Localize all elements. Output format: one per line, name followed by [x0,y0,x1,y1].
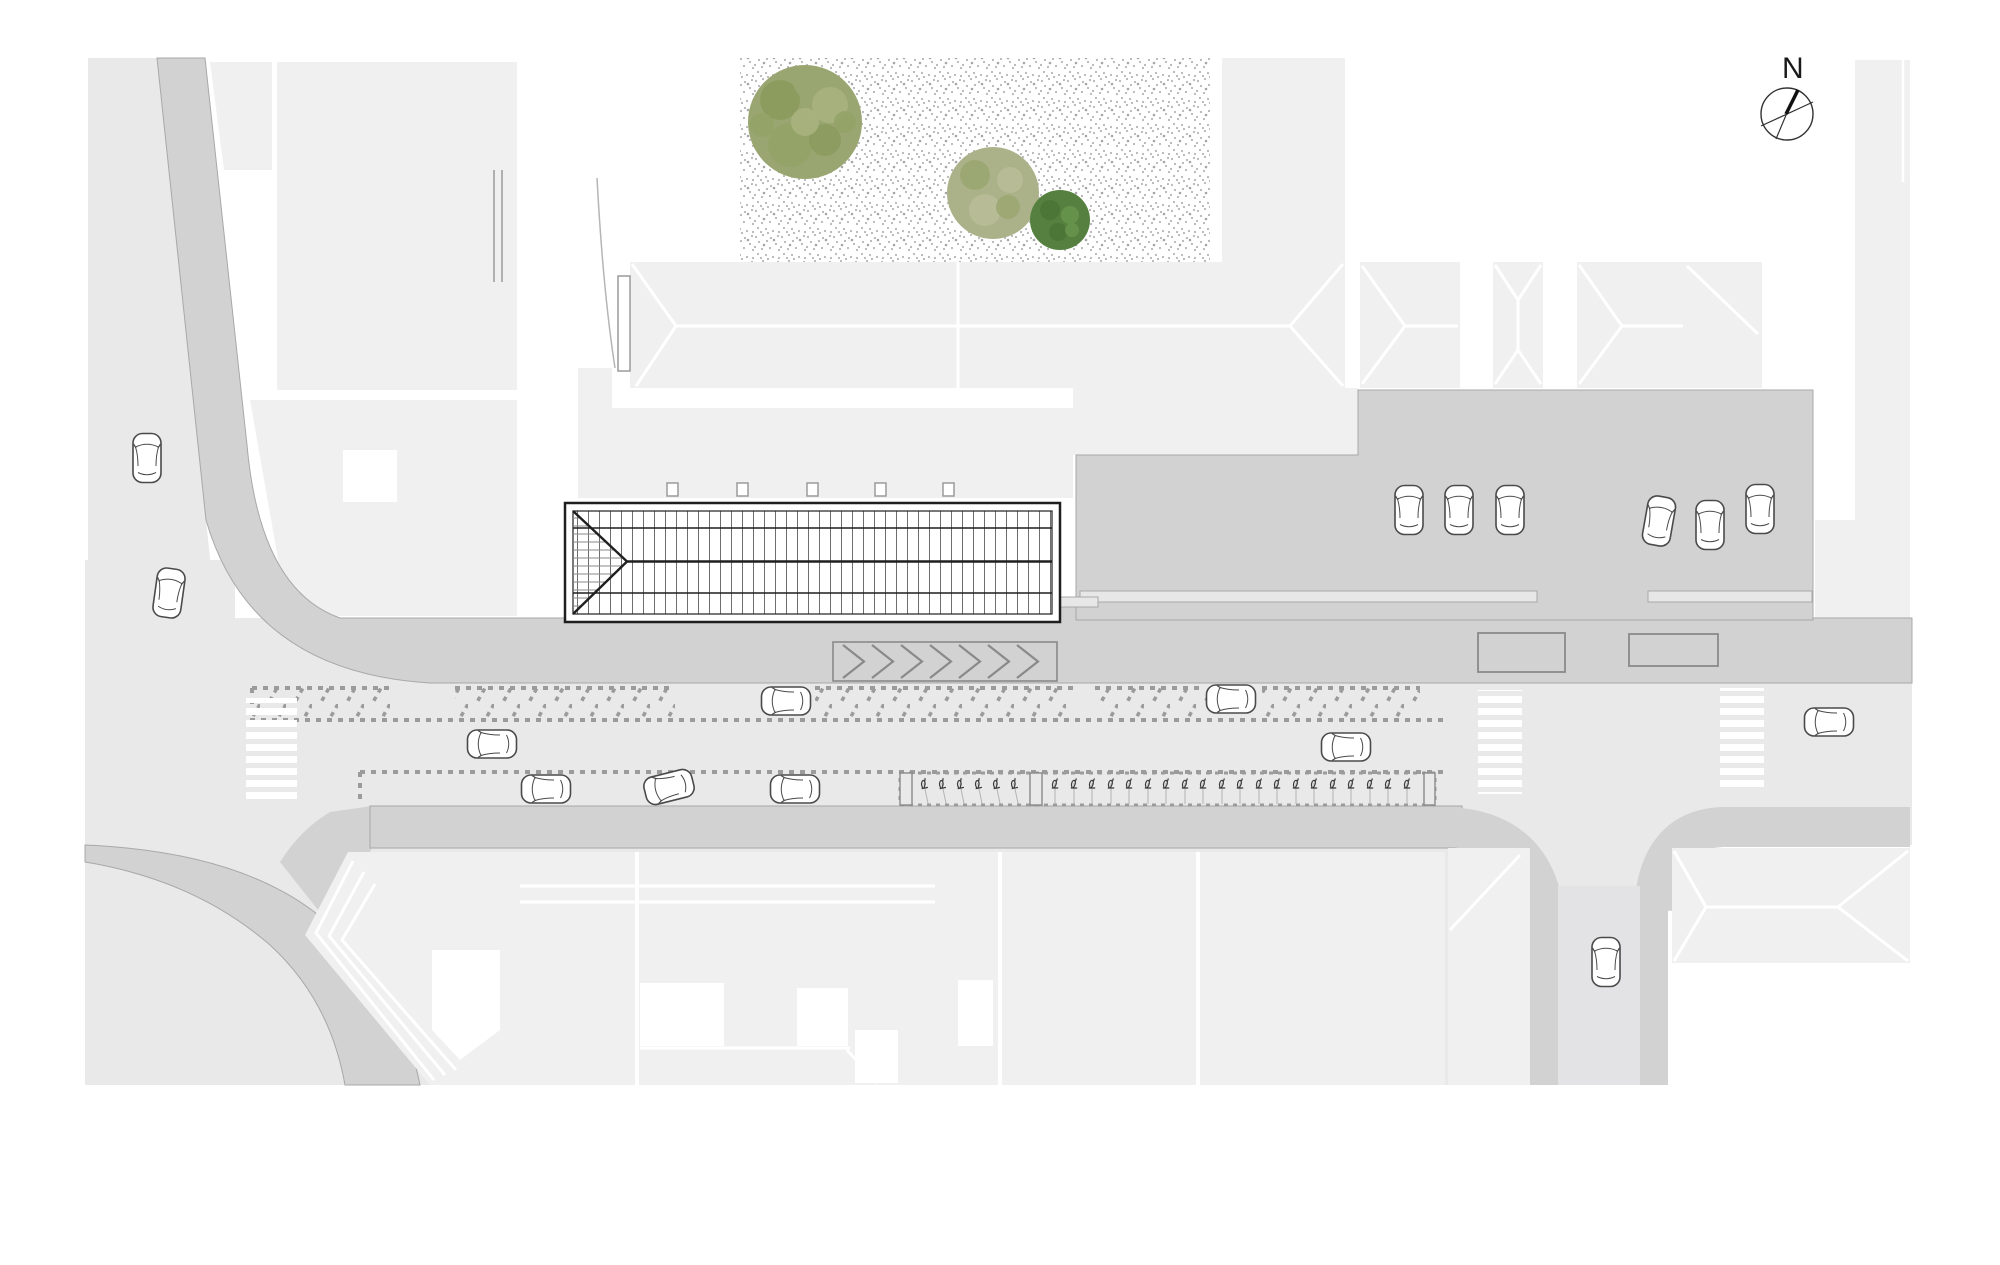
tree-large [748,65,862,179]
building-block [1815,520,1910,622]
building-block [277,62,517,390]
hall-column [737,483,748,496]
building-block [1073,388,1358,455]
car [1322,733,1371,761]
north-label: N [1782,52,1804,85]
courtyard [797,988,848,1046]
site-plan: N [0,0,2000,1265]
car [1207,685,1256,713]
hall-column [667,483,678,496]
car [771,775,820,803]
hall-column [875,483,886,496]
rack-divider [900,773,912,805]
curb-strip [1080,591,1537,602]
zebra-crossing [1478,690,1522,794]
hall-column [807,483,818,496]
tree-small [1030,190,1090,250]
car [762,687,811,715]
courtyard [958,980,993,1046]
car [1496,486,1524,535]
building-block [1222,58,1345,262]
rack-divider [1030,773,1042,805]
zebra-crossing [246,698,297,801]
hall-column [943,483,954,496]
car [1696,501,1724,550]
car [1445,486,1473,535]
courtyard [343,450,397,502]
car [468,730,517,758]
building-block [1448,848,1530,1085]
curb-strip [1648,591,1812,602]
zebra-crossing [1720,688,1764,791]
plaza-gate [618,276,630,371]
courtyard [640,983,724,1046]
car [1395,486,1423,535]
rack-divider [1424,773,1435,805]
courtyard [855,1030,898,1083]
car [1592,938,1620,987]
market-hall [565,483,1060,622]
car [522,775,571,803]
car [133,434,161,483]
car [1805,708,1854,736]
car [152,567,187,619]
tree-medium [947,147,1039,239]
car [1746,485,1774,534]
south-road [370,806,1462,848]
